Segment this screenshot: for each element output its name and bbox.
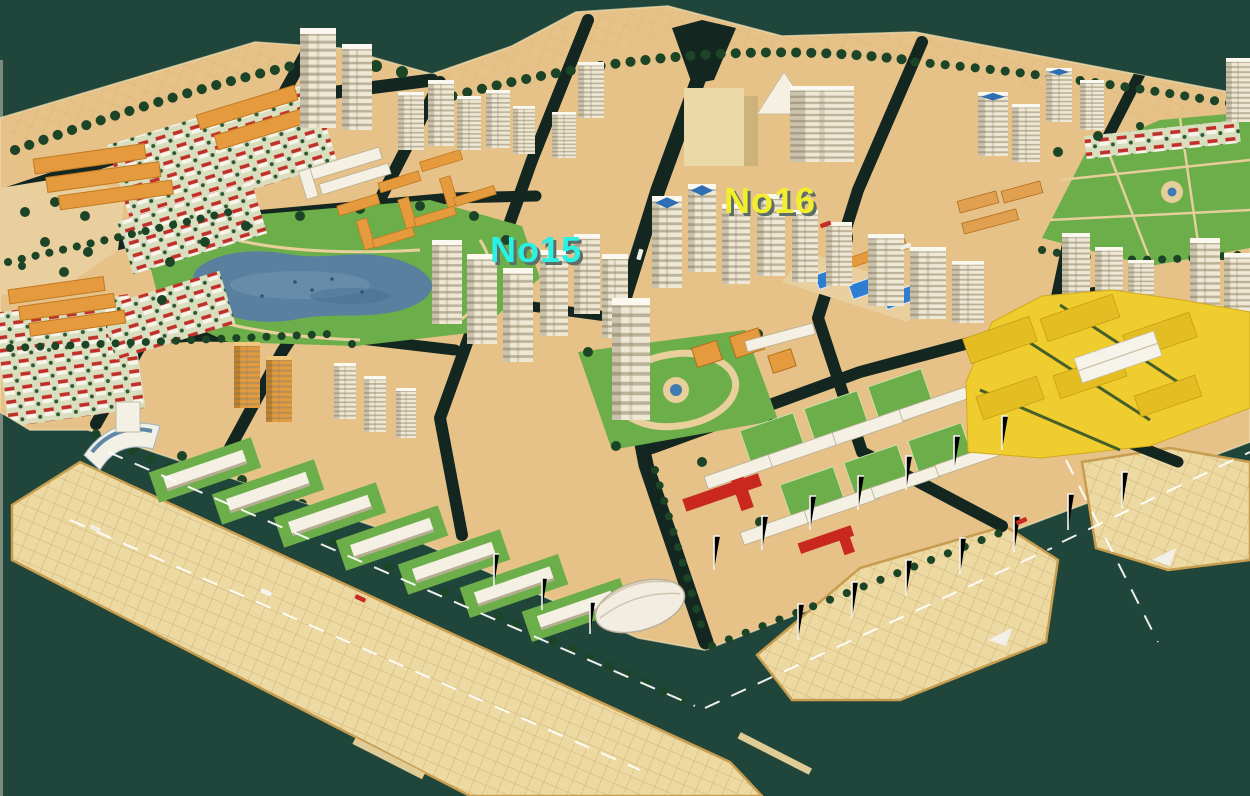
- lake-shadow: [310, 288, 390, 304]
- hotel-tower: [116, 402, 140, 432]
- garden-fountain: [670, 384, 682, 396]
- no15-label: No15: [490, 229, 582, 270]
- masterplan-canvas: No15 No15 No16 No16: [0, 0, 1250, 796]
- masterplan-rendering: No15 No15 No16 No16: [0, 0, 1250, 796]
- plain-box-building: [684, 88, 744, 166]
- plain-box-side: [744, 96, 758, 166]
- east-park-fountain: [1168, 188, 1177, 197]
- no16-label: No16: [724, 180, 816, 221]
